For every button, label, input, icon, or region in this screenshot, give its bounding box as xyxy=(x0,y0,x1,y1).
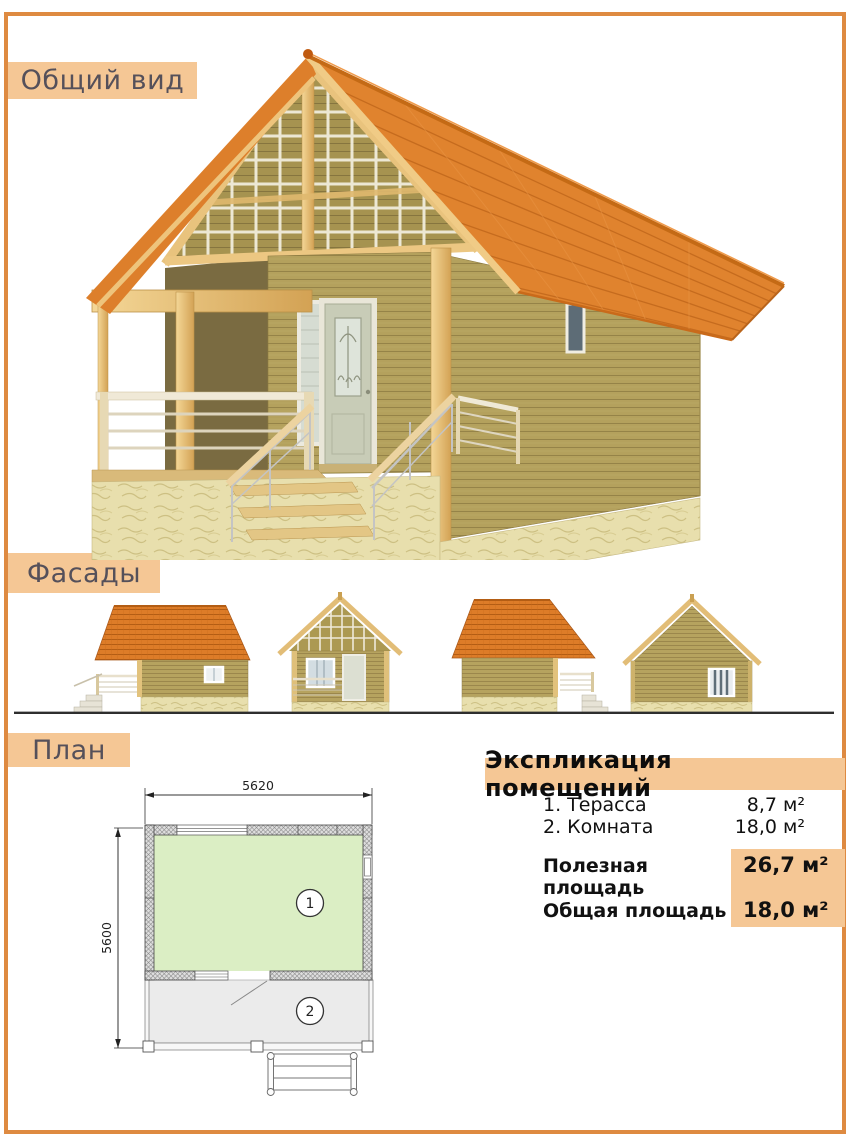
explication-table: Экспликация помещений 1. Терасса 8,7 м² … xyxy=(485,758,845,922)
dimension-width: 5620 xyxy=(145,778,372,824)
room-area: 18,0 м² xyxy=(735,816,805,838)
facade-front xyxy=(279,592,401,713)
room-area: 8,7 м² xyxy=(747,794,805,816)
project-sheet: Общий вид Фасады План xyxy=(0,0,850,1148)
room-name: 2. Комната xyxy=(543,816,653,838)
floor-plan: 1 2 5620 xyxy=(90,778,390,1100)
house-3d-render xyxy=(80,40,790,560)
room-1-marker: 1 xyxy=(297,890,324,917)
section-label-facades: Фасады xyxy=(27,558,141,589)
explication-title: Экспликация помещений xyxy=(485,758,845,790)
svg-text:5620: 5620 xyxy=(242,778,274,793)
total-name: Общая площадь xyxy=(485,900,731,922)
room-2-marker: 2 xyxy=(297,998,324,1025)
explication-totals: Полезная площадь 26,7 м² Общая площадь 1… xyxy=(485,854,845,922)
facade-side-right xyxy=(452,600,608,713)
door-handle xyxy=(366,390,370,394)
total-area: 18,0 м² xyxy=(731,899,845,921)
plan-steps xyxy=(267,1053,357,1096)
facades-elevations xyxy=(10,590,838,716)
section-banner-plan: План xyxy=(8,733,130,767)
svg-text:5600: 5600 xyxy=(99,922,114,954)
roof-finial xyxy=(303,49,313,59)
facade-side-left xyxy=(74,606,250,713)
dimension-height: 5600 xyxy=(99,828,143,1048)
total-row: Полезная площадь 26,7 м² xyxy=(485,854,845,899)
explication-row: 2. Комната 18,0 м² xyxy=(485,816,845,838)
total-name: Полезная площадь xyxy=(485,855,731,899)
section-label-plan: План xyxy=(32,735,106,766)
svg-text:2: 2 xyxy=(306,1004,315,1020)
total-area: 26,7 м² xyxy=(731,854,845,876)
side-window xyxy=(567,304,584,352)
room-name: 1. Терасса xyxy=(543,794,647,816)
plan-room-1-area xyxy=(154,835,363,971)
total-row: Общая площадь 18,0 м² xyxy=(485,899,845,922)
facade-rear xyxy=(624,594,760,713)
plan-room-2-area xyxy=(148,980,370,1043)
svg-text:1: 1 xyxy=(306,896,315,912)
